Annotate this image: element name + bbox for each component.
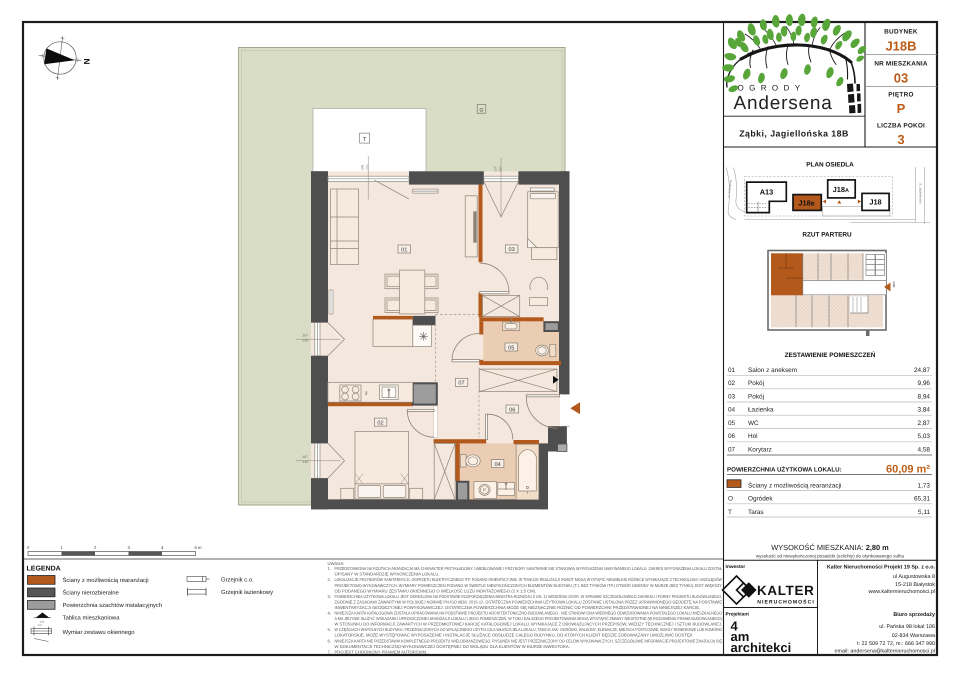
svg-text:t: 22 509 72 72, m.: 666 347 9: t: 22 509 72 72, m.: 666 347 990: [857, 641, 935, 647]
svg-text:230: 230: [366, 164, 370, 170]
svg-text:NR MIESZKANIA: NR MIESZKANIA: [874, 61, 928, 68]
svg-text:3: 3: [897, 132, 904, 147]
svg-text:4.: 4.: [328, 611, 332, 616]
svg-text:05: 05: [728, 420, 736, 427]
svg-text:7.: 7.: [328, 649, 332, 654]
svg-text:Powierzchnia szachtów instalac: Powierzchnia szachtów instalacyjnych: [63, 602, 163, 609]
svg-text:T: T: [728, 509, 732, 516]
svg-text:Inwestor: Inwestor: [726, 564, 746, 570]
svg-text:W STOSUNKU DO INFORMACJI ZAWAR: W STOSUNKU DO INFORMACJI ZAWARTYCH W PRZ…: [335, 622, 723, 627]
svg-text:5 m: 5 m: [195, 545, 202, 550]
svg-text:6.: 6.: [328, 638, 332, 643]
svg-text:Salon z aneksem: Salon z aneksem: [748, 367, 797, 374]
svg-text:architekci: architekci: [731, 640, 792, 655]
svg-text:241: 241: [361, 164, 365, 170]
svg-text:2: 2: [94, 545, 97, 550]
svg-text:06: 06: [509, 407, 515, 413]
svg-text:167: 167: [38, 624, 43, 627]
svg-text:107: 107: [494, 166, 498, 172]
svg-text:02-834 Warszawa: 02-834 Warszawa: [892, 633, 935, 639]
svg-text:07: 07: [458, 381, 464, 387]
svg-text:04: 04: [494, 462, 500, 468]
svg-text:02: 02: [377, 420, 383, 426]
svg-text:ul. Pańska 98 lokal 106: ul. Pańska 98 lokal 106: [879, 624, 935, 630]
svg-text:J18B: J18B: [892, 281, 896, 288]
svg-text:ZGODNIE Z ZASADAMI ZAWARTYMI W: ZGODNIE Z ZASADAMI ZAWARTYMI W POLSKIEJ …: [335, 599, 723, 604]
svg-text:15-218 Białystok: 15-218 Białystok: [895, 582, 935, 588]
svg-text:Ściany z możliwością rearanżac: Ściany z możliwością rearanżacji: [63, 576, 149, 584]
svg-text:LEGENDA: LEGENDA: [27, 566, 61, 573]
svg-text:OPISANY W STANDARDZIE WYKOŃCZE: OPISANY W STANDARDZIE WYKOŃCZENIA LOKALU…: [335, 572, 440, 577]
svg-text:OD PODANEGO WYMIARU ZESTAWU OK: OD PODANEGO WYMIARU ZESTAWU OKIENNEGO O …: [335, 588, 537, 593]
svg-text:Tablica mieszkaniowa: Tablica mieszkaniowa: [63, 615, 121, 622]
svg-text:LOKATORSKIE, MOŻE WYSTĘPOWAĆ W: LOKATORSKIE, MOŻE WYSTĘPOWAĆ WYPOSAŻENIE…: [335, 633, 694, 638]
svg-text:OGRODY: OGRODY: [738, 84, 806, 93]
svg-text:J18B: J18B: [885, 39, 916, 54]
svg-text:Biuro sprzedaży: Biuro sprzedaży: [893, 612, 935, 618]
svg-text:1.: 1.: [328, 566, 332, 571]
svg-text:65,31: 65,31: [914, 496, 930, 503]
svg-text:A MA JEDYNIE SŁUŻYĆ WSKAZANIU: A MA JEDYNIE SŁUŻYĆ WSKAZANIU UPROSZCZON…: [335, 616, 723, 621]
svg-text:ZESTAWIENIE POMIESZCZEŃ: ZESTAWIENIE POMIESZCZEŃ: [785, 351, 876, 359]
svg-text:5,11: 5,11: [918, 509, 930, 516]
svg-text:WC: WC: [748, 420, 759, 427]
svg-text:24,87: 24,87: [914, 367, 930, 374]
svg-text:4: 4: [161, 545, 164, 550]
svg-text:ul. Jagiellońska: ul. Jagiellońska: [919, 183, 923, 204]
svg-text:05: 05: [508, 345, 514, 351]
svg-text:Ściany z możliwością rearanżac: Ściany z możliwością rearanżacji: [748, 482, 841, 490]
svg-text:wysokość od niewykończonej pos: wysokość od niewykończonej posadzki (szl…: [756, 554, 905, 559]
svg-text:A13: A13: [760, 187, 774, 196]
svg-text:PROJEKT CHRONIONY PRAWEM AUTOR: PROJEKT CHRONIONY PRAWEM AUTORSKIM.: [335, 649, 428, 654]
svg-text:NINIEJSZA KARTA KATALOGOWA ZOS: NINIEJSZA KARTA KATALOGOWA ZOSTAŁA OPRAC…: [335, 611, 723, 616]
svg-text:Pokój: Pokój: [748, 393, 764, 400]
svg-text:07: 07: [728, 446, 736, 453]
svg-text:ul. Andersena: ul. Andersena: [727, 179, 733, 198]
svg-text:8,94: 8,94: [918, 393, 931, 400]
svg-text:Grzejnik c.o.: Grzejnik c.o.: [221, 577, 254, 584]
svg-text:03: 03: [508, 247, 514, 253]
svg-text:Hol: Hol: [748, 433, 758, 440]
svg-text:W DOKUMENTACJI TECHNICZNO-WYKO: W DOKUMENTACJI TECHNICZNO-WYKONAWCZEJ DO…: [335, 644, 570, 649]
svg-text:1: 1: [61, 545, 64, 550]
svg-text:230: 230: [302, 460, 308, 464]
svg-text:167: 167: [302, 333, 308, 337]
svg-text:PLAN OSIEDLA: PLAN OSIEDLA: [806, 162, 854, 169]
svg-text:2,87: 2,87: [918, 420, 931, 427]
svg-text:Ściany nierozbieralne: Ściany nierozbieralne: [63, 589, 120, 597]
svg-text:NINIEJSZA KARTA NIE PRZEDSTAWI: NINIEJSZA KARTA NIE PRZEDSTAWIA KOMPLETN…: [335, 638, 723, 643]
svg-text:N: N: [82, 59, 91, 65]
svg-text:J18: J18: [869, 198, 881, 207]
svg-text:PROJEKTOWO-WYKONAWCZYCH. WYMIA: PROJEKTOWO-WYKONAWCZYCH. WYMIARY POMIESZ…: [335, 583, 723, 588]
svg-text:LICZBA POKOI: LICZBA POKOI: [877, 123, 925, 130]
svg-text:5,03: 5,03: [918, 433, 931, 440]
svg-text:BUDYNEK: BUDYNEK: [884, 29, 918, 36]
svg-text:01: 01: [401, 247, 407, 253]
svg-text:230: 230: [302, 339, 308, 343]
svg-text:email: andersena@kalternieruch: email: andersena@kalternieruchomosci.pl: [835, 648, 935, 654]
svg-text:4,58: 4,58: [918, 446, 931, 453]
svg-text:T: T: [363, 137, 367, 143]
svg-text:Ogródek: Ogródek: [748, 496, 773, 503]
svg-text:Korytarz: Korytarz: [748, 446, 772, 453]
svg-text:z: z: [365, 390, 368, 396]
svg-text:ul Augustowska 8: ul Augustowska 8: [893, 574, 935, 580]
svg-text:3.: 3.: [328, 594, 332, 599]
svg-text:06: 06: [728, 433, 736, 440]
svg-text:POWIERZCHNIA UŻYTKOWA LOKALU J: POWIERZCHNIA UŻYTKOWA LOKALU JEST OKREŚL…: [335, 594, 723, 599]
svg-text:03: 03: [894, 71, 908, 86]
svg-text:www.kalternieruchomosci.pl: www.kalternieruchomosci.pl: [867, 589, 935, 595]
svg-text:LOKALIZACJE PRZYBORÓW SANITARN: LOKALIZACJE PRZYBORÓW SANITARNYCH, OSPRZ…: [335, 577, 723, 582]
svg-text:230: 230: [499, 166, 503, 172]
svg-text:0: 0: [27, 545, 30, 550]
svg-text:60,09 m²: 60,09 m²: [886, 464, 930, 476]
svg-text:P: P: [897, 101, 906, 116]
svg-text:RZUT PARTERU: RZUT PARTERU: [802, 232, 852, 239]
svg-text:Łazienka: Łazienka: [748, 407, 774, 414]
svg-text:04: 04: [728, 407, 736, 414]
svg-text:Taras: Taras: [748, 509, 764, 516]
svg-text:PIĘTRO: PIĘTRO: [888, 92, 914, 99]
svg-text:INWENTARYZACJI GEODEZYJNEJ POW: INWENTARYZACJI GEODEZYJNEJ POWYKONAWCZEJ…: [335, 605, 701, 610]
svg-text:Andersena: Andersena: [734, 93, 833, 114]
svg-text:1,73: 1,73: [918, 483, 931, 490]
svg-text:01: 01: [728, 367, 736, 374]
svg-text:O: O: [480, 108, 484, 114]
svg-text:PRZEDSTAWIONA NA RZUTACH ARANŻ: PRZEDSTAWIONA NA RZUTACH ARANŻACJA MA CH…: [335, 566, 723, 571]
svg-text:167: 167: [302, 455, 308, 459]
svg-text:3: 3: [128, 545, 131, 550]
svg-text:Pokój: Pokój: [748, 380, 764, 387]
svg-text:P: P: [483, 488, 486, 493]
svg-text:Grzejnik łazienkowy: Grzejnik łazienkowy: [221, 589, 273, 596]
svg-text:Kalter Nieruchomości Projekt 1: Kalter Nieruchomości Projekt 19 Sp. z o.…: [827, 565, 936, 571]
svg-text:POWIERZCHNIA UŻYTKOWA LOKALU:: POWIERZCHNIA UŻYTKOWA LOKALU:: [727, 466, 842, 474]
svg-text:03: 03: [728, 393, 736, 400]
svg-text:9,96: 9,96: [918, 380, 931, 387]
svg-text:Projektant: Projektant: [726, 612, 750, 618]
svg-text:02: 02: [728, 380, 736, 387]
svg-text:O: O: [728, 496, 733, 503]
svg-text:5.: 5.: [328, 627, 332, 632]
svg-text:2.: 2.: [328, 577, 332, 582]
svg-text:Wymiar zestawu okiennego: Wymiar zestawu okiennego: [63, 629, 136, 636]
svg-text:NIERUCHOMOŚCI: NIERUCHOMOŚCI: [757, 598, 815, 605]
svg-text:W CZĘŚCIACH WSPÓLNYCH BUDYNKU,: W CZĘŚCIACH WSPÓLNYCH BUDYNKU, PRZEZNACZ…: [335, 627, 723, 632]
svg-text:Ząbki, Jagiellońska 18B: Ząbki, Jagiellońska 18B: [739, 129, 849, 139]
svg-text:KALTER: KALTER: [757, 583, 815, 598]
svg-text:WYSOKOŚĆ MIESZKANIA: 2,80 m: WYSOKOŚĆ MIESZKANIA: 2,80 m: [771, 543, 889, 552]
svg-text:3,84: 3,84: [918, 407, 931, 414]
